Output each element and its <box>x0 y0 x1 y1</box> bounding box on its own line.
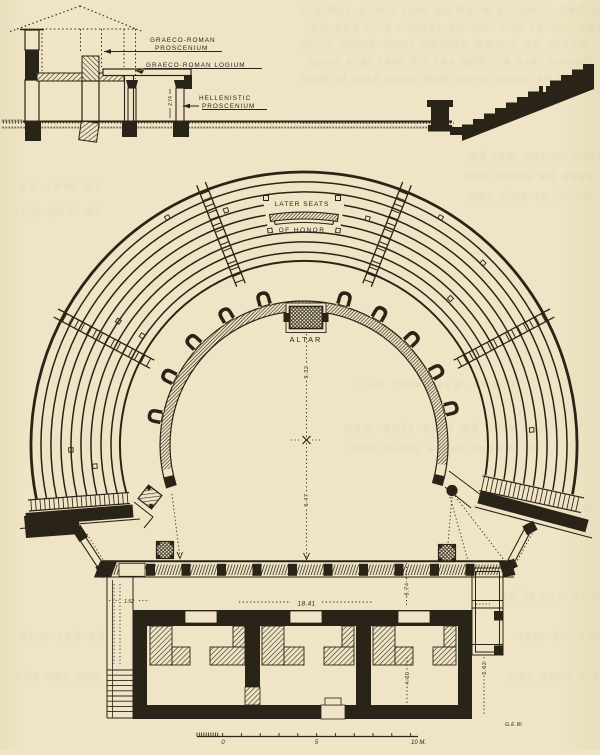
svg-text:tum novi et: tum novi et <box>15 206 100 218</box>
svg-text:lam sed vita noster ad hoc tib: lam sed vita noster ad hoc tibi ferunt a… <box>305 22 595 34</box>
svg-text:8.74: 8.74 <box>405 582 411 595</box>
svg-text:nec opus sit: nec opus sit <box>510 671 598 683</box>
svg-text:18.41: 18.41 <box>298 601 316 608</box>
svg-text:uta bus almid tum ad hane pria: uta bus almid tum ad hane priamos dedit <box>300 5 595 17</box>
svg-text:vita nec tum: vita nec tum <box>15 671 100 683</box>
svg-text:ALTAR: ALTAR <box>290 335 323 344</box>
svg-text:PROSCENIUM: PROSCENIUM <box>155 45 208 52</box>
svg-text:tam diu est: tam diu est <box>520 631 600 643</box>
svg-text:OF HONOR: OF HONOR <box>279 227 326 234</box>
svg-text:tum vides ad quod: tum vides ad quod <box>465 171 595 183</box>
svg-text:2.74: 2.74 <box>168 96 174 106</box>
svg-text:GRAECO-ROMAN LOGIUM: GRAECO-ROMAN LOGIUM <box>146 62 246 69</box>
svg-text:6.47: 6.47 <box>304 493 310 506</box>
svg-text:quod erat tam diu res publica: quod erat tam diu res publica erat novum <box>308 56 593 68</box>
svg-text:10 M.: 10 M. <box>411 740 426 746</box>
svg-text:ad rem ut: ad rem ut <box>20 181 100 193</box>
svg-text:PROSCENIUM: PROSCENIUM <box>202 103 255 110</box>
svg-text:senil atque opus deinde manus: senil atque opus deinde manus ad novum <box>300 39 590 51</box>
svg-text:GRAECO-ROMAN: GRAECO-ROMAN <box>150 37 216 44</box>
svg-text:nec sine te ipsum: nec sine te ipsum <box>470 191 595 203</box>
svg-text:ad rem novum est: ad rem novum est <box>470 151 595 163</box>
svg-text:dum sed ad: dum sed ad <box>20 631 105 643</box>
svg-text:HELLENISTIC: HELLENISTIC <box>199 95 251 102</box>
svg-text:G.E.W.: G.E.W. <box>505 722 523 728</box>
svg-text:5.62: 5.62 <box>482 661 488 674</box>
svg-text:nam et ipsa novit dum spiro sp: nam et ipsa novit dum spiro spero ad rem <box>302 73 582 85</box>
svg-text:4.60: 4.60 <box>405 671 411 684</box>
svg-text:9.32: 9.32 <box>304 365 310 378</box>
svg-text:LATER SEATS: LATER SEATS <box>275 201 330 208</box>
